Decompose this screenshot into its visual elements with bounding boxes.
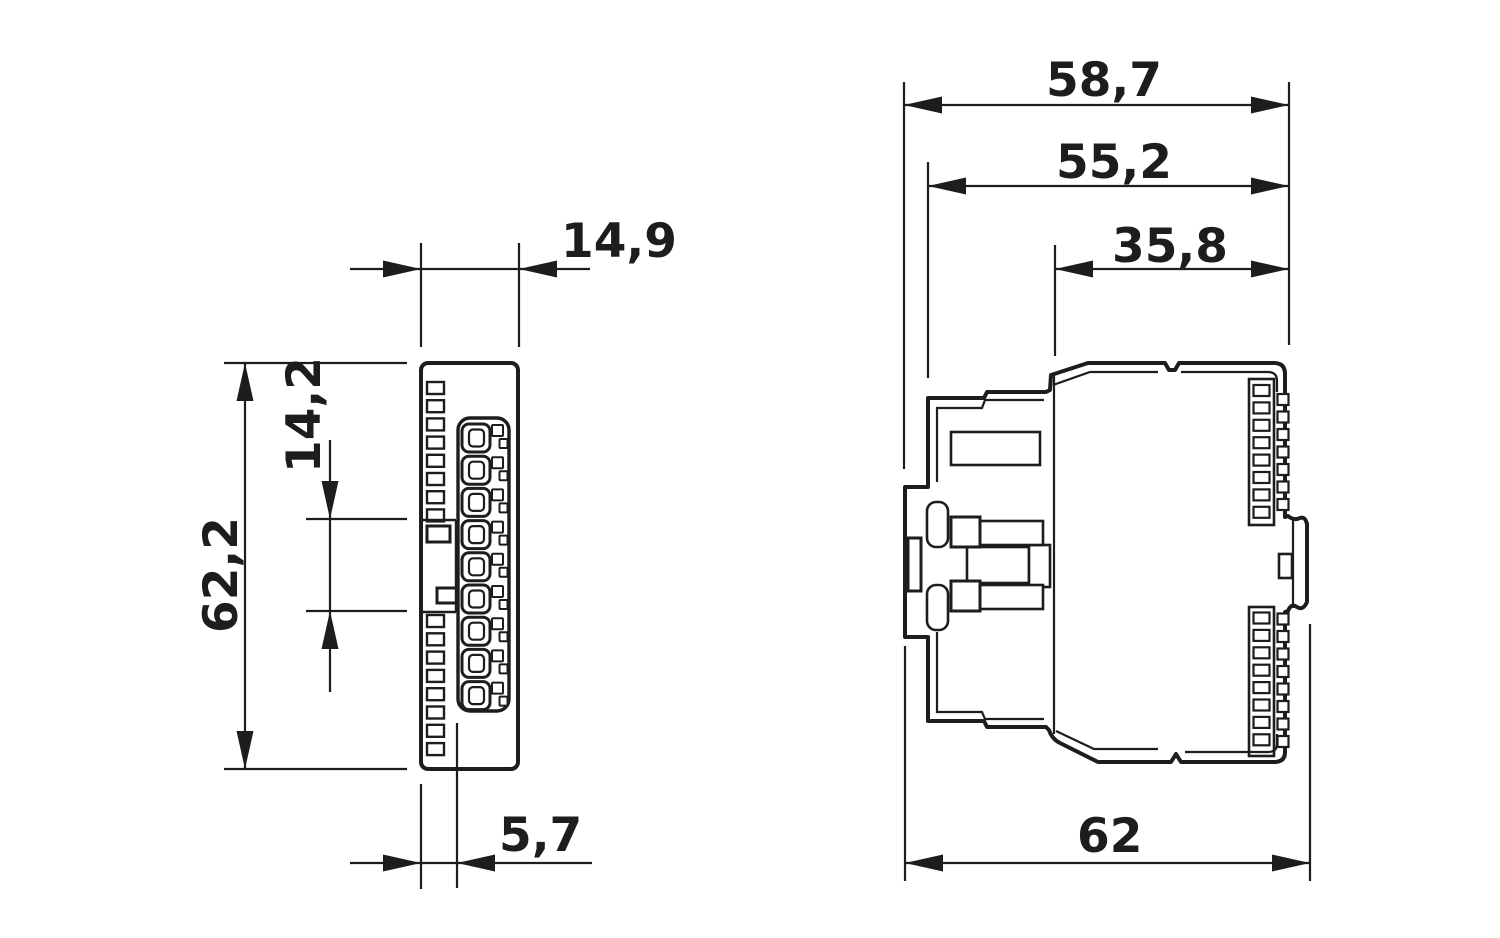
- serration-cell: [500, 568, 508, 577]
- grille-rung: [1254, 734, 1270, 745]
- edge-tooth: [1278, 464, 1289, 475]
- vent-slot: [427, 743, 444, 755]
- drawing-canvas: 14,9 62,2 14,2 5,7: [0, 0, 1500, 938]
- serration-cell: [492, 489, 503, 500]
- vent-slot: [427, 652, 444, 664]
- dim-label-terminal-pitch: 14,2: [277, 357, 332, 473]
- edge-tooth: [1278, 719, 1289, 730]
- arrowhead-left-icon: [905, 855, 943, 872]
- serration-cell: [500, 600, 508, 609]
- dim-label-total-depth: 58,7: [1046, 53, 1162, 108]
- grille-rung: [1254, 717, 1270, 728]
- grille-rung: [1254, 507, 1270, 518]
- edge-tooth: [1278, 614, 1289, 625]
- screw-terminal-inner: [469, 462, 484, 479]
- dim-label-front-height: 62,2: [194, 517, 249, 633]
- dim-front-width: 14,9: [350, 214, 677, 347]
- arrowhead-up-icon: [322, 611, 339, 649]
- arrowhead-right-icon: [1272, 855, 1310, 872]
- grille-rung: [1254, 613, 1270, 624]
- vent-slot: [427, 382, 444, 394]
- edge-tooth: [1278, 649, 1289, 660]
- extension-lines: [306, 519, 407, 611]
- arrowhead-right-icon: [1251, 178, 1289, 195]
- grille-rung: [1254, 630, 1270, 641]
- arrowhead-left-icon: [519, 261, 557, 278]
- grille-rung: [1254, 437, 1270, 448]
- serration-cell: [492, 457, 503, 468]
- serration-cell: [500, 697, 508, 706]
- edge-tooth: [1278, 447, 1289, 458]
- dim-label-front-depth: 35,8: [1112, 219, 1228, 274]
- serration-cell: [500, 632, 508, 641]
- edge-tooth: [1278, 701, 1289, 712]
- dim-label-overall-depth: 62: [1077, 809, 1142, 864]
- vent-slot: [427, 400, 444, 412]
- edge-tooth: [1278, 631, 1289, 642]
- bus-screw-upper: [951, 517, 980, 547]
- edge-teeth-top: [1278, 394, 1289, 510]
- bus-connector-cap: [1029, 545, 1050, 587]
- arrowhead-right-icon: [383, 855, 421, 872]
- edge-tooth: [1278, 429, 1289, 440]
- screw-terminal-inner: [469, 655, 484, 672]
- bus-connector-block: [908, 538, 921, 591]
- side-view: [905, 363, 1307, 762]
- serration-cell: [500, 503, 508, 512]
- grille-rung: [1254, 489, 1270, 500]
- serration-cell: [492, 683, 503, 694]
- bus-connector-pill-lower: [927, 585, 948, 630]
- bus-connector-body: [967, 547, 1029, 583]
- vent-slot: [427, 473, 444, 485]
- edge-tooth: [1278, 394, 1289, 405]
- screw-terminal-inner: [469, 591, 484, 608]
- screw-terminals: [462, 424, 490, 710]
- serration-cell: [500, 536, 508, 545]
- serration-cell: [492, 618, 503, 629]
- vent-slot: [427, 455, 444, 467]
- dimension-drawing: 14,9 62,2 14,2 5,7: [0, 0, 1500, 938]
- arrowhead-down-icon: [237, 731, 254, 769]
- arrowhead-left-icon: [928, 178, 966, 195]
- dim-side-housing-depth: 55,2: [928, 135, 1289, 378]
- vent-slot: [427, 707, 444, 719]
- grille-rung: [1254, 385, 1270, 396]
- grille-rung: [1254, 420, 1270, 431]
- serration-cell: [492, 586, 503, 597]
- dim-label-front-width: 14,9: [561, 214, 677, 269]
- extension-lines: [421, 243, 519, 347]
- grille-rung: [1254, 647, 1270, 658]
- serration-cell: [500, 664, 508, 673]
- dim-label-front-offset: 5,7: [499, 808, 582, 863]
- screw-terminal-inner: [469, 623, 484, 640]
- grille-rung: [1254, 472, 1270, 483]
- grille-rung: [1254, 682, 1270, 693]
- vent-slot: [427, 615, 444, 627]
- edge-tooth: [1278, 666, 1289, 677]
- grille-rung: [1254, 665, 1270, 676]
- serration-cell: [492, 650, 503, 661]
- vent-slot: [427, 437, 444, 449]
- edge-tooth: [1278, 499, 1289, 510]
- vent-slot: [427, 670, 444, 682]
- side-module-outline: [905, 363, 1307, 762]
- vent-slot: [427, 491, 444, 503]
- arrowhead-left-icon: [1055, 261, 1093, 278]
- dim-terminal-pitch: 14,2: [277, 357, 407, 692]
- arrowhead-left-icon: [457, 855, 495, 872]
- edge-tooth: [1278, 412, 1289, 423]
- dim-side-front-depth: 35,8: [1055, 219, 1289, 356]
- vent-slot: [427, 725, 444, 737]
- edge-tooth: [1278, 482, 1289, 493]
- arrowhead-right-icon: [383, 261, 421, 278]
- serration-cell: [492, 522, 503, 533]
- edge-tooth: [1278, 736, 1289, 747]
- arrowhead-right-icon: [1251, 97, 1289, 114]
- screw-terminal-inner: [469, 430, 484, 447]
- screw-terminal-inner: [469, 526, 484, 543]
- arrowhead-up-icon: [237, 363, 254, 401]
- bus-screw-lower: [951, 581, 980, 611]
- arrowhead-down-icon: [322, 481, 339, 519]
- arrowhead-right-icon: [1251, 261, 1289, 278]
- dim-front-offset: 5,7: [350, 784, 592, 889]
- vent-slot: [427, 633, 444, 645]
- vent-slot: [427, 688, 444, 700]
- serration-cell: [492, 554, 503, 565]
- screw-terminal-inner: [469, 494, 484, 511]
- bus-contact-lower: [980, 585, 1043, 609]
- vent-slot: [427, 418, 444, 430]
- bus-connector-pill-upper: [927, 502, 948, 547]
- screw-terminal-inner: [469, 687, 484, 704]
- grille-rung: [1254, 455, 1270, 466]
- edge-tooth: [1278, 684, 1289, 695]
- serration-cell: [500, 471, 508, 480]
- arrowhead-left-icon: [904, 97, 942, 114]
- bus-contact-upper: [980, 521, 1043, 545]
- screw-terminal-inner: [469, 558, 484, 575]
- serration-cell: [492, 425, 503, 436]
- dim-label-housing-depth: 55,2: [1056, 135, 1172, 190]
- grille-rung: [1254, 402, 1270, 413]
- serration-cell: [500, 439, 508, 448]
- grille-rung: [1254, 700, 1270, 711]
